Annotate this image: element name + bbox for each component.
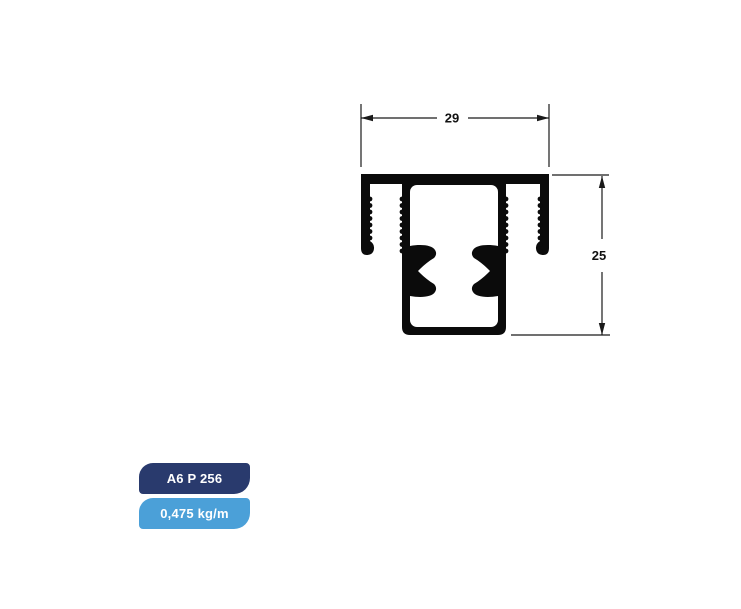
profile-cross-section <box>361 174 549 335</box>
profile-right-leg <box>536 174 549 255</box>
dimension-width-label: 29 <box>445 111 459 126</box>
profile-weight-badge: 0,475 kg/m <box>139 498 250 529</box>
dimension-height-label: 25 <box>592 248 606 263</box>
profile-code-badge: A6 P 256 <box>139 463 250 494</box>
catalog-page: 29 25 A6 P 256 0,475 kg/m <box>0 0 741 609</box>
profile-technical-drawing: 29 25 <box>0 0 741 609</box>
profile-left-leg <box>361 174 374 255</box>
arrow-right-icon <box>537 115 549 121</box>
profile-code-label: A6 P 256 <box>167 471 223 486</box>
profile-weight-label: 0,475 kg/m <box>160 506 229 521</box>
arrow-up-icon <box>599 176 605 188</box>
arrow-left-icon <box>361 115 373 121</box>
arrow-down-icon <box>599 323 605 335</box>
